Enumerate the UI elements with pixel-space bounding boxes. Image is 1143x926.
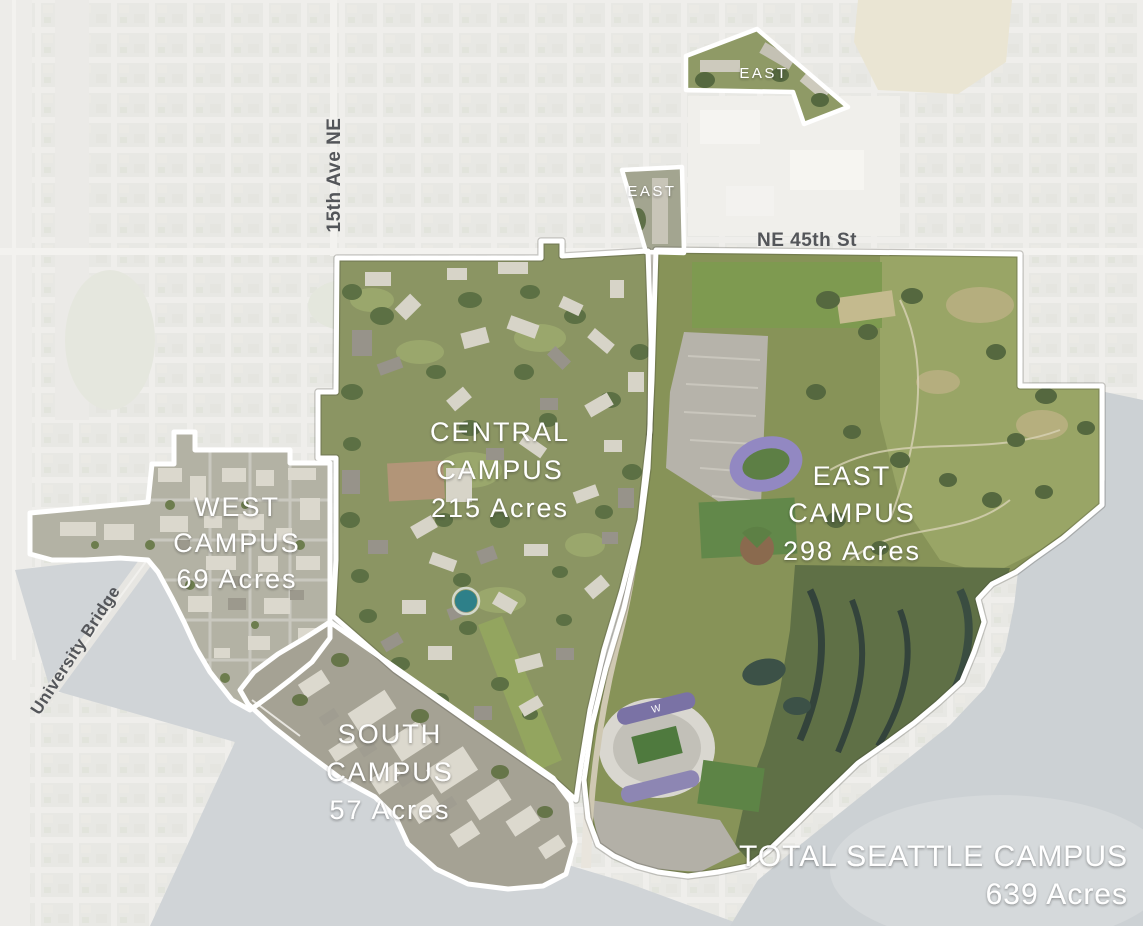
west-label-line2: CAMPUS xyxy=(173,528,301,558)
east-parcel-north-label: EAST xyxy=(739,65,788,82)
ne-45th-label: NE 45th St xyxy=(757,230,857,251)
campus-map-page: W xyxy=(0,0,1143,926)
east-parcel-west-label: EAST xyxy=(627,183,676,200)
central-campus-label: CENTRAL CAMPUS 215 Acres xyxy=(430,417,570,523)
east-label-acres: 298 Acres xyxy=(783,536,921,566)
west-label-acres: 69 Acres xyxy=(176,564,297,594)
practice-field xyxy=(697,760,765,812)
drumheller-fountain xyxy=(455,590,477,612)
west-label-line1: WEST xyxy=(194,492,280,522)
campus-map: W xyxy=(0,0,1143,926)
south-campus-label: SOUTH CAMPUS 57 Acres xyxy=(326,719,454,825)
total-label-acres: 639 Acres xyxy=(986,878,1128,911)
15th-ave-label: 15th Ave NE xyxy=(324,118,345,233)
south-label-line2: CAMPUS xyxy=(326,757,454,787)
central-label-line2: CAMPUS xyxy=(436,455,564,485)
east-label-line1: EAST xyxy=(813,461,892,491)
east-label-line2: CAMPUS xyxy=(788,498,916,528)
central-label-acres: 215 Acres xyxy=(431,493,569,523)
south-label-line1: SOUTH xyxy=(338,719,443,749)
total-label-line1: TOTAL SEATTLE CAMPUS xyxy=(739,840,1128,873)
central-label-line1: CENTRAL xyxy=(430,417,570,447)
south-label-acres: 57 Acres xyxy=(329,795,450,825)
